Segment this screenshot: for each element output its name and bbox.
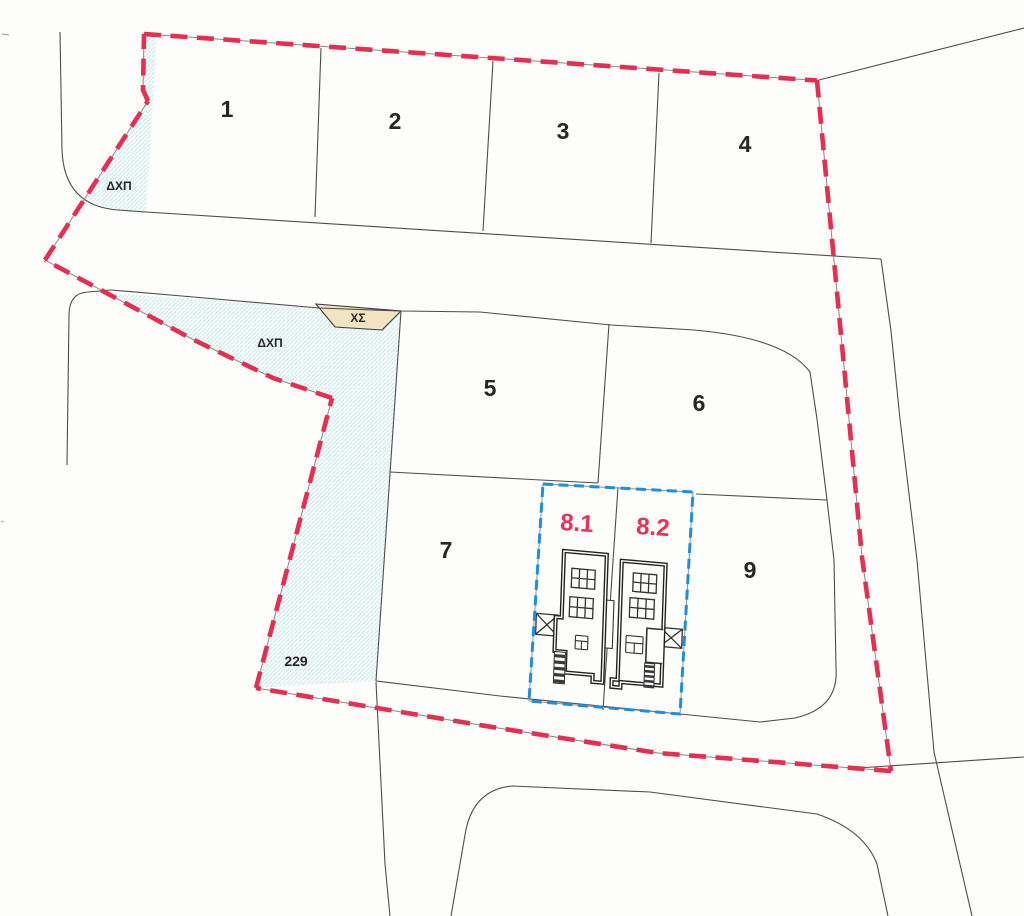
svg-text:ΧΣ: ΧΣ: [350, 311, 365, 325]
svg-text:3: 3: [557, 118, 570, 144]
svg-text:6: 6: [693, 390, 706, 416]
svg-text:5: 5: [484, 375, 497, 401]
svg-text:9: 9: [744, 557, 757, 583]
svg-text:7: 7: [440, 537, 453, 563]
svg-text:4: 4: [739, 131, 752, 157]
svg-text:229: 229: [284, 653, 308, 669]
svg-text:ΔΧΠ: ΔΧΠ: [257, 336, 282, 350]
svg-text:8.1: 8.1: [559, 509, 594, 538]
svg-text:2: 2: [389, 108, 402, 134]
svg-text:ΔΧΠ: ΔΧΠ: [106, 179, 131, 193]
svg-text:1: 1: [221, 96, 234, 122]
svg-text:8.2: 8.2: [635, 513, 670, 542]
